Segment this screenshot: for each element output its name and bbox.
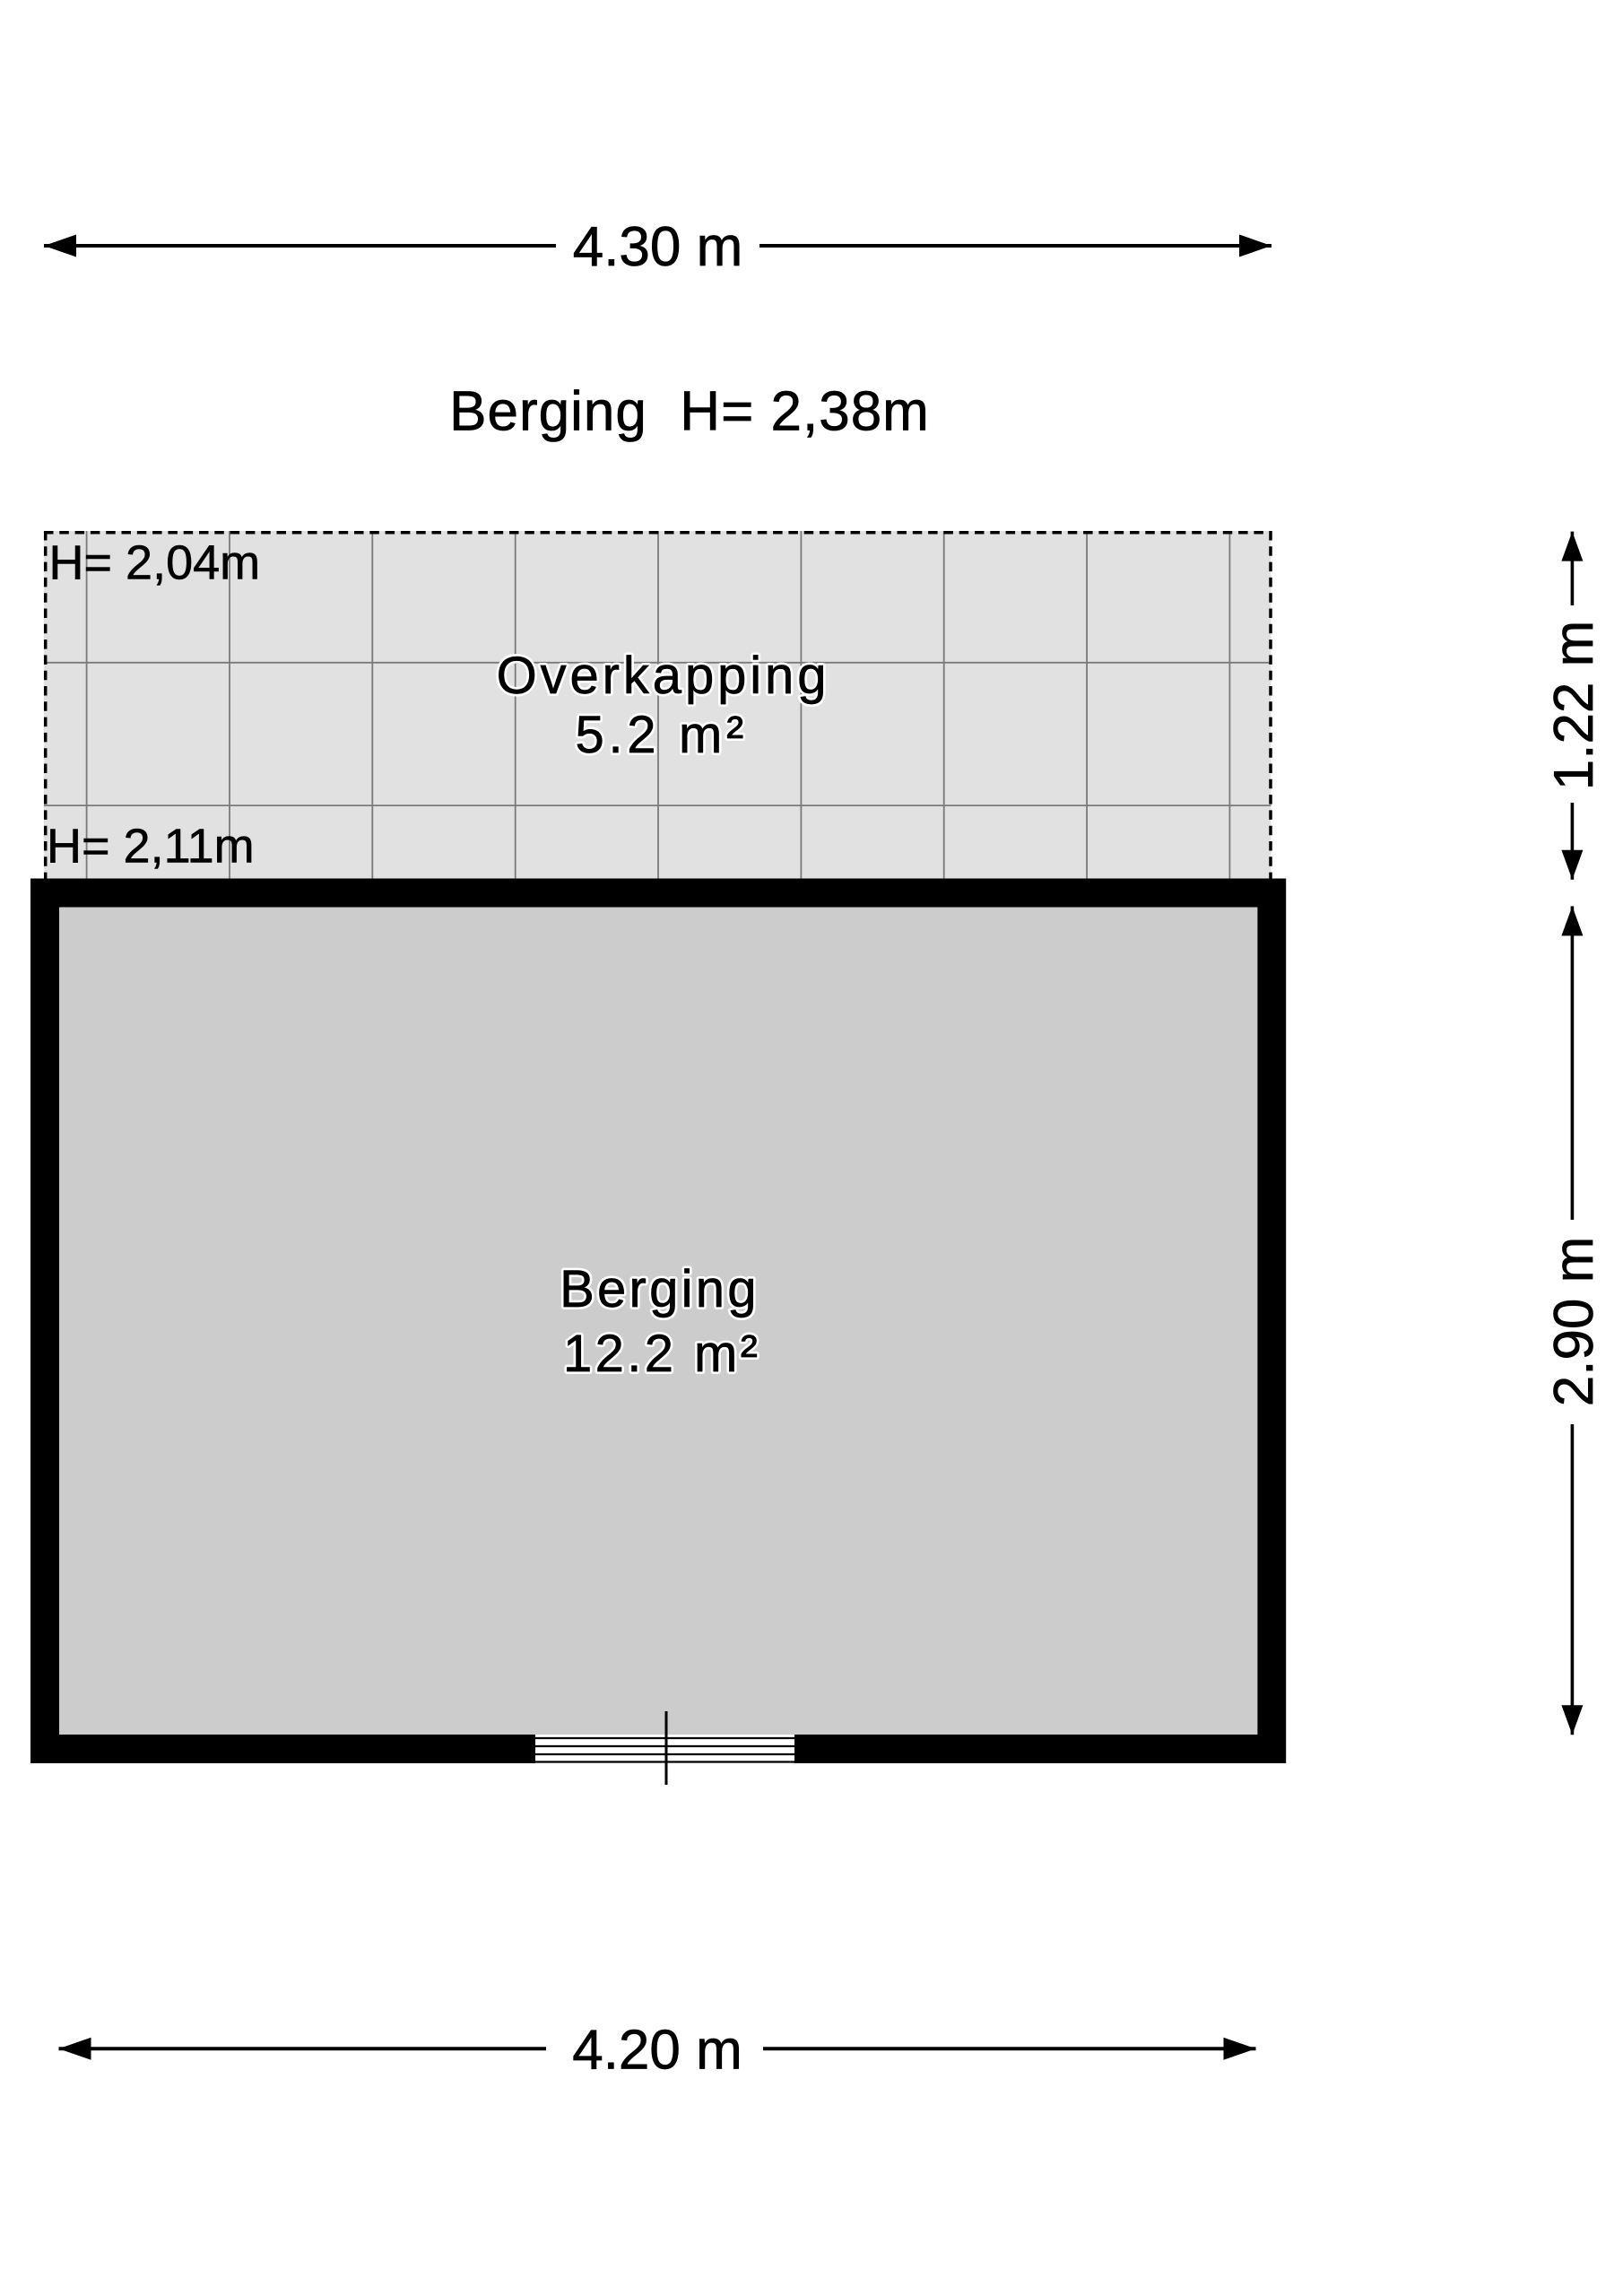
svg-text:Overkapping: Overkapping <box>497 647 830 705</box>
svg-text:Berging H= 2,38m: Berging H= 2,38m <box>449 381 930 443</box>
svg-text:5.2 m²: 5.2 m² <box>576 706 749 764</box>
svg-text:12.2 m²: 12.2 m² <box>563 1325 760 1383</box>
svg-text:H= 2,04m: H= 2,04m <box>49 536 261 590</box>
svg-text:4.30 m: 4.30 m <box>573 216 743 278</box>
svg-text:1.22 m: 1.22 m <box>1543 621 1605 791</box>
svg-text:H= 2,11m: H= 2,11m <box>47 820 255 874</box>
svg-text:2.90 m: 2.90 m <box>1543 1237 1605 1407</box>
svg-text:4.20 m: 4.20 m <box>572 2020 742 2082</box>
svg-text:Berging: Berging <box>560 1260 759 1318</box>
